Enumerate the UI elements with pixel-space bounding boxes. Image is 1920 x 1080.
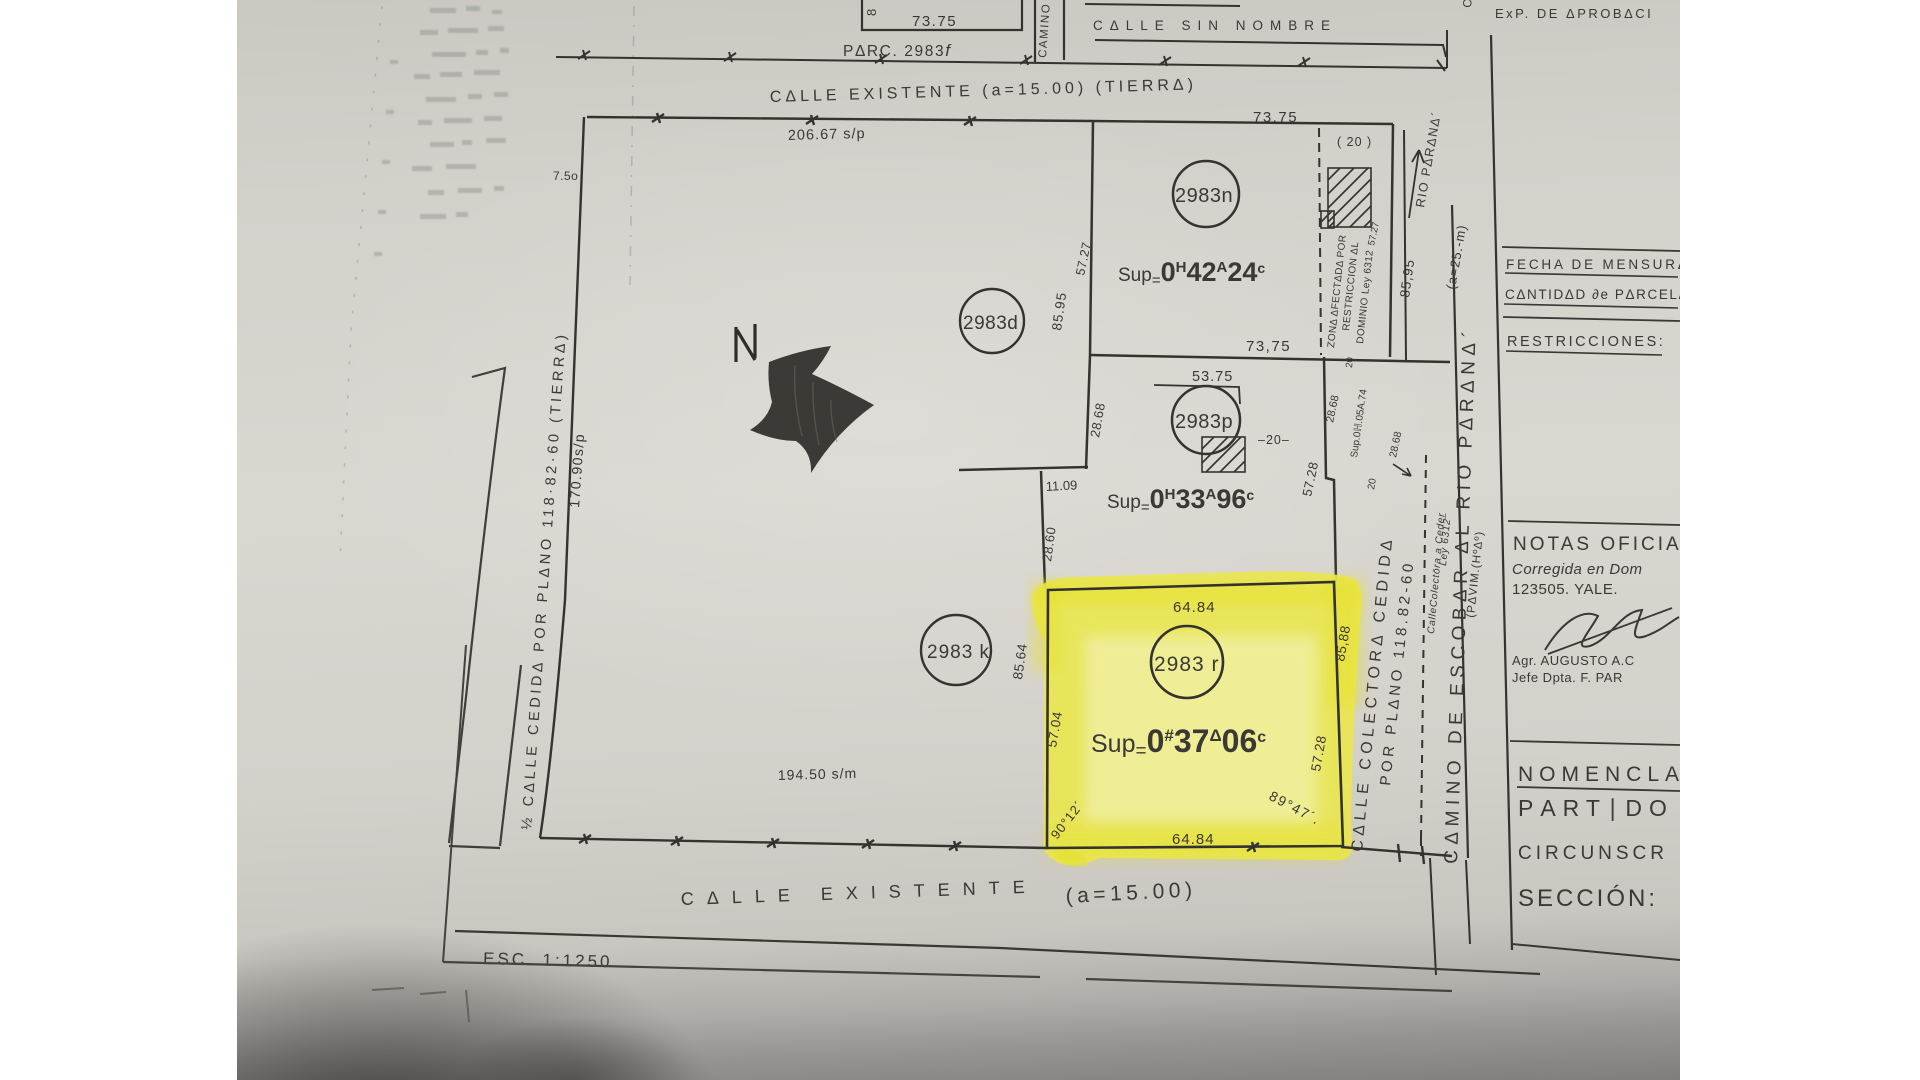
svg-text:123505. YALE.: 123505. YALE. xyxy=(1512,581,1618,598)
svg-text:73,75: 73,75 xyxy=(1246,338,1291,355)
svg-text:2983 k: 2983 k xyxy=(927,642,990,663)
svg-text:FECΗA DE MENSURΔ: FECΗA DE MENSURΔ xyxy=(1506,257,1680,272)
svg-text:11.09: 11.09 xyxy=(1045,477,1077,494)
svg-text:ExP. DE ΔPROBΔCI: ExP. DE ΔPROBΔCI xyxy=(1495,6,1653,21)
svg-text:57.28: 57.28 xyxy=(1299,460,1321,497)
svg-text:½ CΔLLE CEDIDΔ POR PLΔNO 118·8: ½ CΔLLE CEDIDΔ POR PLΔNO 118·82·60 (TIER… xyxy=(519,331,570,830)
svg-text:CAMINO: CAMINO xyxy=(1037,3,1053,59)
svg-text:20: 20 xyxy=(1366,477,1379,490)
svg-text:2983d: 2983d xyxy=(963,313,1018,334)
svg-text:28.68: 28.68 xyxy=(1087,401,1108,438)
svg-text:170.90s/p: 170.90s/p xyxy=(566,432,587,508)
svg-text:57.27: 57.27 xyxy=(1366,221,1382,247)
svg-text:73.75: 73.75 xyxy=(912,13,957,30)
svg-text:Jefe Dpta. F. PAR: Jefe Dpta. F. PAR xyxy=(1512,670,1623,685)
svg-text:64.84: 64.84 xyxy=(1172,831,1215,848)
svg-text:20: 20 xyxy=(1344,357,1356,368)
svg-text:2983n: 2983n xyxy=(1175,185,1233,207)
svg-text:PАRT∣DO: PАRT∣DO xyxy=(1518,795,1674,821)
svg-text:CΔNTIDΔD ∂e PΔRCELΔ: CΔNTIDΔD ∂e PΔRCELΔ xyxy=(1505,287,1680,302)
svg-text:Sup=0H42A24c: Sup=0H42A24c xyxy=(1118,257,1265,289)
svg-text:CIRCUNSCR: CIRCUNSCR xyxy=(1518,843,1668,864)
svg-text:28.68: 28.68 xyxy=(1387,430,1404,458)
svg-text:Sup=0H33A96c: Sup=0H33A96c xyxy=(1107,484,1254,516)
svg-text:PΔRC. 2983f: PΔRC. 2983f xyxy=(843,41,952,60)
svg-text:CΔLLE SIN NOMBRE: CΔLLE SIN NOMBRE xyxy=(1093,18,1337,33)
svg-text:(a=15.00): (a=15.00) xyxy=(1065,878,1197,908)
svg-text:194.50 s/m: 194.50 s/m xyxy=(778,765,858,783)
svg-text:CΔLLE EXISTENTE (a=15.00) (T: CΔLLE EXISTENTE (a=15.00) (TIERRΔ) xyxy=(770,76,1198,106)
svg-text:(a=25.-m): (a=25.-m) xyxy=(1443,223,1469,290)
svg-text:2983 r: 2983 r xyxy=(1154,653,1220,676)
svg-text:Sup.0ℍ.05A.74: Sup.0ℍ.05A.74 xyxy=(1349,388,1370,458)
svg-text:CΔLLE EXISTENTE: CΔLLE EXISTENTE xyxy=(680,877,1038,909)
svg-text:Agr. AUGUSTO A.C: Agr. AUGUSTO A.C xyxy=(1512,653,1635,668)
svg-text:28.68: 28.68 xyxy=(1324,394,1341,423)
svg-text:ESC. 1:1250: ESC. 1:1250 xyxy=(483,949,613,971)
svg-text:Corregida en Dom: Corregida en Dom xyxy=(1512,561,1643,578)
svg-text:NOMENCLAT: NOMENCLAT xyxy=(1518,763,1680,786)
svg-text:NOTAS OFICIAL: NOTAS OFICIAL xyxy=(1513,534,1680,555)
svg-text:206.67 s/p: 206.67 s/p xyxy=(788,126,866,144)
svg-text:64.84: 64.84 xyxy=(1173,599,1216,616)
svg-text:85.64: 85.64 xyxy=(1010,642,1030,680)
svg-text:85.95: 85.95 xyxy=(1049,291,1069,332)
svg-text:2983p: 2983p xyxy=(1175,411,1233,433)
svg-text:CΔ: CΔ xyxy=(1460,0,1476,8)
svg-text:7.5o: 7.5o xyxy=(553,169,578,183)
svg-text:8: 8 xyxy=(864,9,879,16)
svg-text:( 20 ): ( 20 ) xyxy=(1337,135,1372,149)
svg-text:53.75: 53.75 xyxy=(1192,369,1233,385)
svg-text:85,95: 85,95 xyxy=(1397,258,1417,299)
svg-text:73.75: 73.75 xyxy=(1253,109,1298,126)
svg-text:SECCIÓN:: SECCIÓN: xyxy=(1518,885,1658,912)
svg-text:–20–: –20– xyxy=(1258,433,1290,447)
svg-text:RESTRICCIONES:: RESTRICCIONES: xyxy=(1507,334,1665,350)
